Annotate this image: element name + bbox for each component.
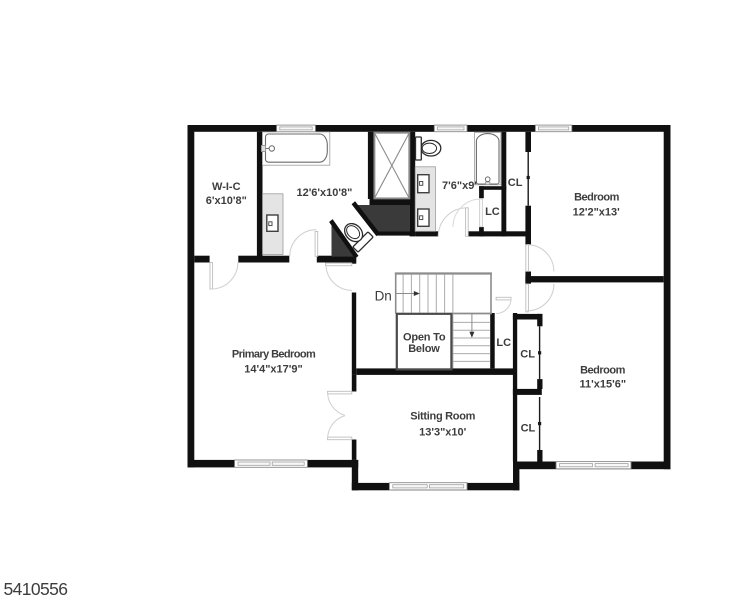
svg-text:5410556: 5410556: [4, 579, 68, 599]
svg-text:CL: CL: [520, 349, 535, 361]
svg-text:12'2"x13': 12'2"x13': [573, 206, 621, 218]
svg-text:7'6"x9': 7'6"x9': [442, 180, 477, 192]
svg-text:14'4"x17'9": 14'4"x17'9": [244, 363, 303, 375]
svg-text:Bedroom: Bedroom: [580, 364, 626, 376]
svg-text:12'6'x10'8": 12'6'x10'8": [296, 187, 352, 199]
svg-text:11'x15'6": 11'x15'6": [580, 379, 627, 391]
svg-text:Below: Below: [408, 343, 440, 355]
svg-text:Primary Bedroom: Primary Bedroom: [232, 348, 316, 360]
svg-text:Open To: Open To: [403, 331, 446, 343]
svg-text:CL: CL: [508, 177, 523, 189]
svg-text:Sitting Room: Sitting Room: [410, 410, 475, 422]
svg-text:Dn: Dn: [375, 289, 392, 304]
svg-text:13'3"x10': 13'3"x10': [419, 427, 467, 439]
svg-text:LC: LC: [485, 206, 500, 218]
svg-text:W-I-C: W-I-C: [212, 181, 241, 193]
svg-text:CL: CL: [521, 423, 536, 435]
svg-text:6'x10'8": 6'x10'8": [206, 195, 247, 207]
svg-text:LC: LC: [496, 337, 511, 349]
svg-text:Bedroom: Bedroom: [574, 192, 620, 204]
